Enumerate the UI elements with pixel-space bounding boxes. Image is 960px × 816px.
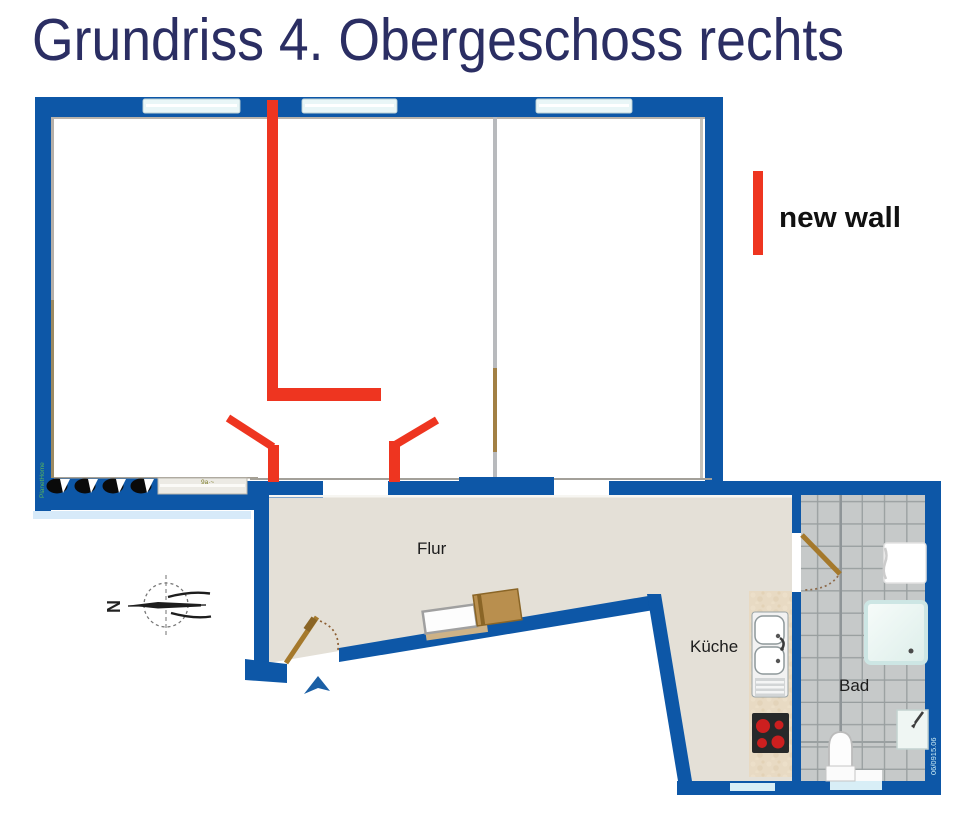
svg-text:Küche: Küche xyxy=(690,637,738,656)
svg-text:Bad: Bad xyxy=(839,676,869,695)
svg-text:PlanetHome: PlanetHome xyxy=(39,462,46,498)
svg-text:N: N xyxy=(104,600,124,613)
svg-text:06/0915.06: 06/0915.06 xyxy=(929,737,938,775)
svg-text:Grundriss 4. Obergeschoss rech: Grundriss 4. Obergeschoss rechts xyxy=(32,7,844,73)
svg-text:9a·~: 9a·~ xyxy=(201,479,214,486)
svg-text:Flur: Flur xyxy=(417,539,447,558)
svg-text:new wall: new wall xyxy=(779,202,901,234)
